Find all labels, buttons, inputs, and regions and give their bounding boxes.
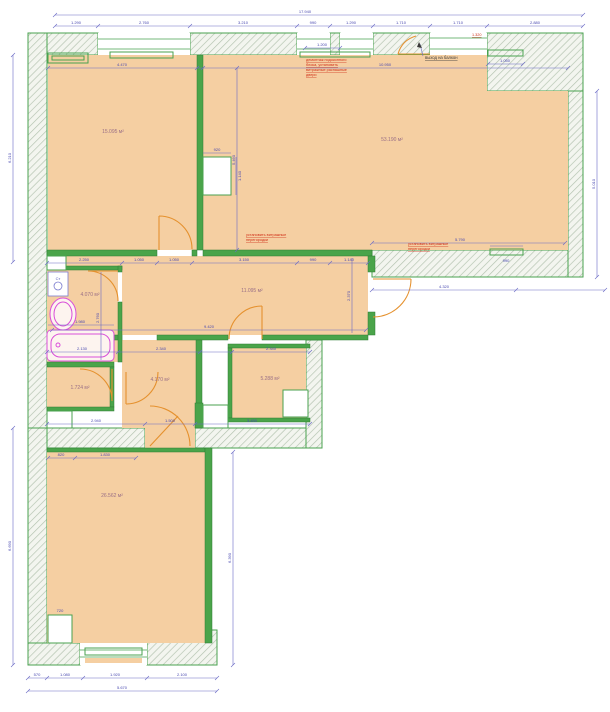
floor-bedroom <box>47 452 205 643</box>
dim-top-s6: 1.710 <box>396 20 407 25</box>
dim-hall-s4: 3.150 <box>239 257 250 262</box>
dim-right-bottom: 4.320 <box>439 284 450 289</box>
dim-balcony-niche: 1.050 <box>500 58 511 63</box>
dim-bedroom-s2: 1.830 <box>100 452 111 457</box>
shaft-bedroom <box>48 615 72 643</box>
sink-bowl <box>54 302 72 326</box>
dim-bottom-right-v: 6.390 <box>227 552 232 563</box>
dim-bath-h: 2.760 <box>95 312 100 323</box>
partition-bath-right-a <box>118 266 122 272</box>
washing-machine-drum <box>54 282 62 290</box>
floor-corridor <box>122 340 196 428</box>
wall-top-pier-2 <box>190 33 297 55</box>
washing-machine-label: Ст <box>56 276 61 281</box>
dim-hall-s3: 1.050 <box>169 257 180 262</box>
dim-bottom-s2: 1.080 <box>60 672 71 677</box>
dim-top-s2: 2.760 <box>139 20 150 25</box>
dim-top-s1: 1.290 <box>71 20 82 25</box>
vitrage-note-2-line2: перегородки <box>408 247 430 251</box>
dim-shaft-h: 1.140 <box>237 170 242 181</box>
floor-living-left <box>48 55 197 250</box>
wall-top-pier-4 <box>373 33 430 55</box>
dim-hall-s2: 1.050 <box>134 257 145 262</box>
dim-hall-s1: 2.250 <box>79 257 90 262</box>
dim-top-s3: 3.210 <box>238 20 249 25</box>
dim-tub-w: 1.980 <box>75 319 86 324</box>
bathtub-drain <box>56 343 60 347</box>
red-dimension: 1.320 <box>472 33 482 37</box>
dim-hall-h: 2.370 <box>346 290 351 301</box>
partition-hall-right-a <box>368 256 375 272</box>
shaft-lower-left <box>203 405 228 428</box>
demolish-note-line3: витражные распашные <box>306 68 347 72</box>
demolish-note-line1: демонтаж подоконного <box>306 58 347 62</box>
dim-bottom-s1: 570 <box>34 672 41 677</box>
vitrage-note-1-line1: установить витражные <box>246 233 286 237</box>
dim-bottom-s3: 1.920 <box>110 672 121 677</box>
wall-left-upper <box>28 33 47 428</box>
dim-top-s7: 1.710 <box>453 20 464 25</box>
demolish-note-line2: блока, установить <box>306 63 338 67</box>
dim-top-total: 17.940 <box>299 9 312 14</box>
dim-balcony-blue: 1.200 <box>317 42 328 47</box>
demolish-note-line4: двери <box>306 73 317 77</box>
dim-left-v: 6.210 <box>7 152 12 163</box>
shaft-wc <box>47 411 72 428</box>
partition-pantry-left <box>228 348 232 418</box>
wall-right <box>568 91 583 277</box>
dim-hall-s5: 990 <box>310 257 317 262</box>
dim-bedroom-s1: 820 <box>58 452 65 457</box>
wall-entrance-right <box>195 428 306 448</box>
partition-mid-vertical <box>197 55 203 250</box>
floor-plan-drawing: Ст 17.940 1.290 2.760 3.210 990 1.290 1.… <box>0 0 610 712</box>
area-hall: 11.095 м² <box>241 288 263 294</box>
dim-top-s5: 1.290 <box>346 20 357 25</box>
partition-hall-top-a <box>47 250 157 256</box>
partition-hall-bottom-b <box>157 335 228 340</box>
wall-entrance-left <box>47 428 145 448</box>
dim-top-s4: 990 <box>310 20 317 25</box>
partition-hall-bottom-c <box>262 335 368 340</box>
area-living-left: 15.095 м² <box>102 129 124 135</box>
dim-mid-s3: 2.340 <box>266 346 277 351</box>
dim-hall-s6: 1.140 <box>344 257 355 262</box>
dim-bottom-total: 5.670 <box>117 685 128 690</box>
wall-bottom-left <box>28 643 80 665</box>
door-hall-right <box>373 279 411 317</box>
dim-room-right-w: 10.950 <box>379 62 392 67</box>
area-wc: 1.724 м² <box>70 385 89 391</box>
dim-mid-s1: 2.130 <box>77 346 88 351</box>
dim-shaft-w: 920 <box>214 147 221 152</box>
partition-hall-top-b <box>192 250 197 256</box>
partition-wc-top <box>47 362 114 367</box>
area-corridor: 4.170 м² <box>150 377 169 383</box>
partition-wc-bottom <box>47 407 114 411</box>
dim-right-room-inner: 5.790 <box>455 237 466 242</box>
balcony-exit-label: выход на балкон <box>425 55 458 60</box>
vitrage-note-2-line1: установить витражные <box>408 242 448 246</box>
partition-bedroom-right <box>205 448 212 643</box>
vitrage-note-1-line2: перегородки <box>246 238 268 242</box>
dim-shaft5: 720 <box>57 608 64 613</box>
window-bottom-sill <box>85 658 142 663</box>
dim-low-s1: 2.940 <box>91 418 102 423</box>
dim-bottom-s4: 2.100 <box>177 672 188 677</box>
partition-hall-right-b <box>368 312 375 335</box>
dim-right-v: 5.010 <box>591 178 596 189</box>
dim-top-s8: 2.880 <box>530 20 541 25</box>
dim-right-niche: 990 <box>503 258 510 263</box>
area-pantry: 5.288 м² <box>260 376 279 382</box>
floor-plan-sheet: Ст 17.940 1.290 2.760 3.210 990 1.290 1.… <box>0 0 610 712</box>
area-living-right: 53.190 м² <box>381 137 403 143</box>
partition-pantry-bottom <box>228 418 310 422</box>
partition-bath-right-b <box>118 302 122 362</box>
dim-low-s3: 3.450 <box>247 418 258 423</box>
dim-mid-s2: 2.340 <box>156 346 167 351</box>
partition-bedroom-top <box>47 448 205 452</box>
dim-partition-v: 5.460 <box>231 154 236 165</box>
dim-low-s2: 1.500 <box>165 418 176 423</box>
shaft-mid <box>203 157 231 195</box>
area-bedroom: 26.562 м² <box>101 493 123 499</box>
dim-hall-w: 9.420 <box>204 324 215 329</box>
wall-left-lower <box>28 428 47 665</box>
wall-right-room-bottom <box>372 250 568 277</box>
dim-bottom-left-v: 6.690 <box>7 540 12 551</box>
dim-room-left-w: 4.470 <box>117 62 128 67</box>
area-bathroom: 4.070 м² <box>80 292 99 298</box>
shaft-lower-right <box>283 390 308 417</box>
partition-hall-top-c <box>203 250 372 256</box>
